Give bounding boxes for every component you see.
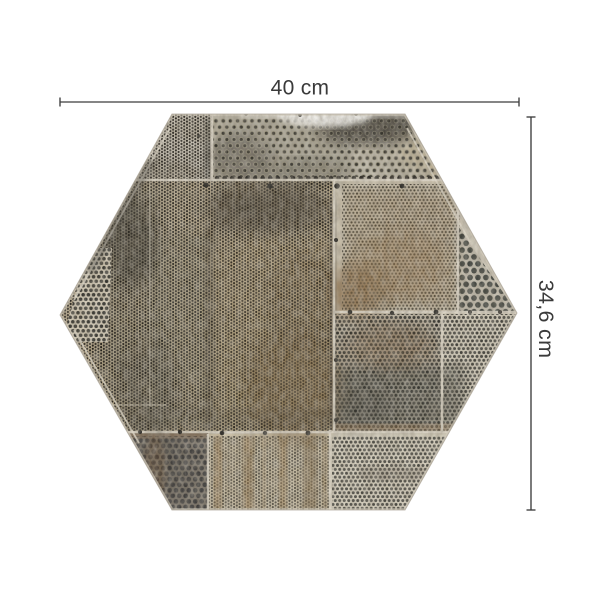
svg-text:40 cm: 40 cm xyxy=(271,77,330,100)
svg-text:34,6 cm: 34,6 cm xyxy=(534,280,558,359)
